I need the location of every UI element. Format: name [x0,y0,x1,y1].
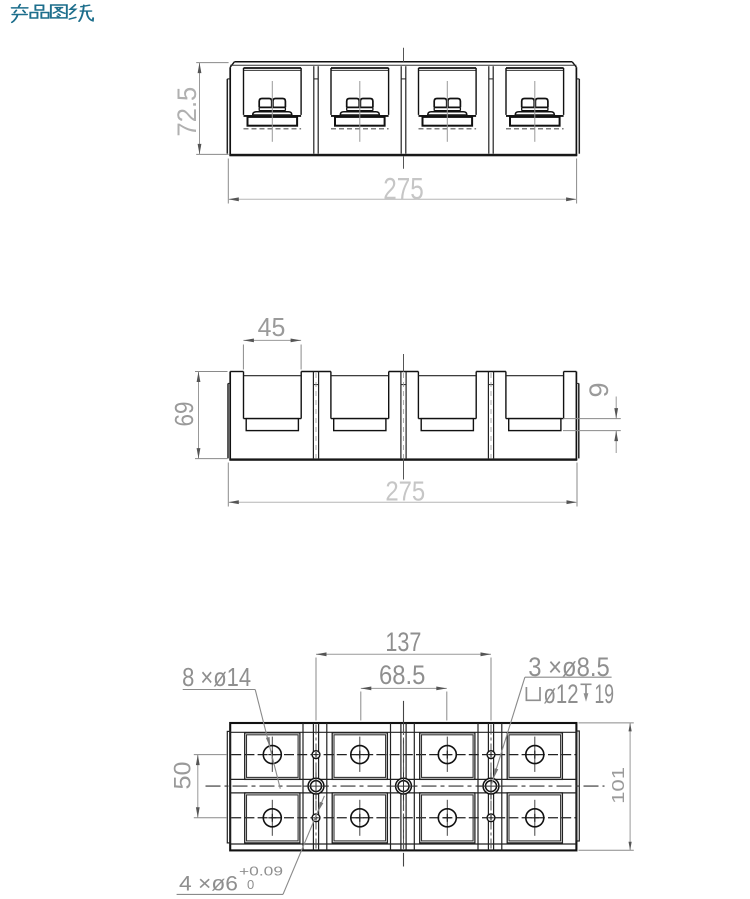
svg-text:275: 275 [383,171,424,206]
svg-text:9: 9 [584,382,614,397]
svg-text:4 ×ø6: 4 ×ø6 [179,872,238,896]
svg-text:69: 69 [169,402,199,427]
svg-text:137: 137 [385,627,421,657]
svg-text:8 ×ø14: 8 ×ø14 [182,662,251,692]
svg-text:72.5: 72.5 [172,87,202,137]
svg-text:19: 19 [595,679,615,709]
svg-text:68.5: 68.5 [379,660,425,690]
svg-text:ø12: ø12 [544,679,579,709]
svg-text:0: 0 [247,877,254,892]
svg-text:+0.09: +0.09 [239,863,283,878]
svg-text:45: 45 [258,312,286,342]
svg-text:50: 50 [169,762,196,790]
svg-text:101: 101 [608,767,628,804]
svg-text:275: 275 [385,476,425,507]
